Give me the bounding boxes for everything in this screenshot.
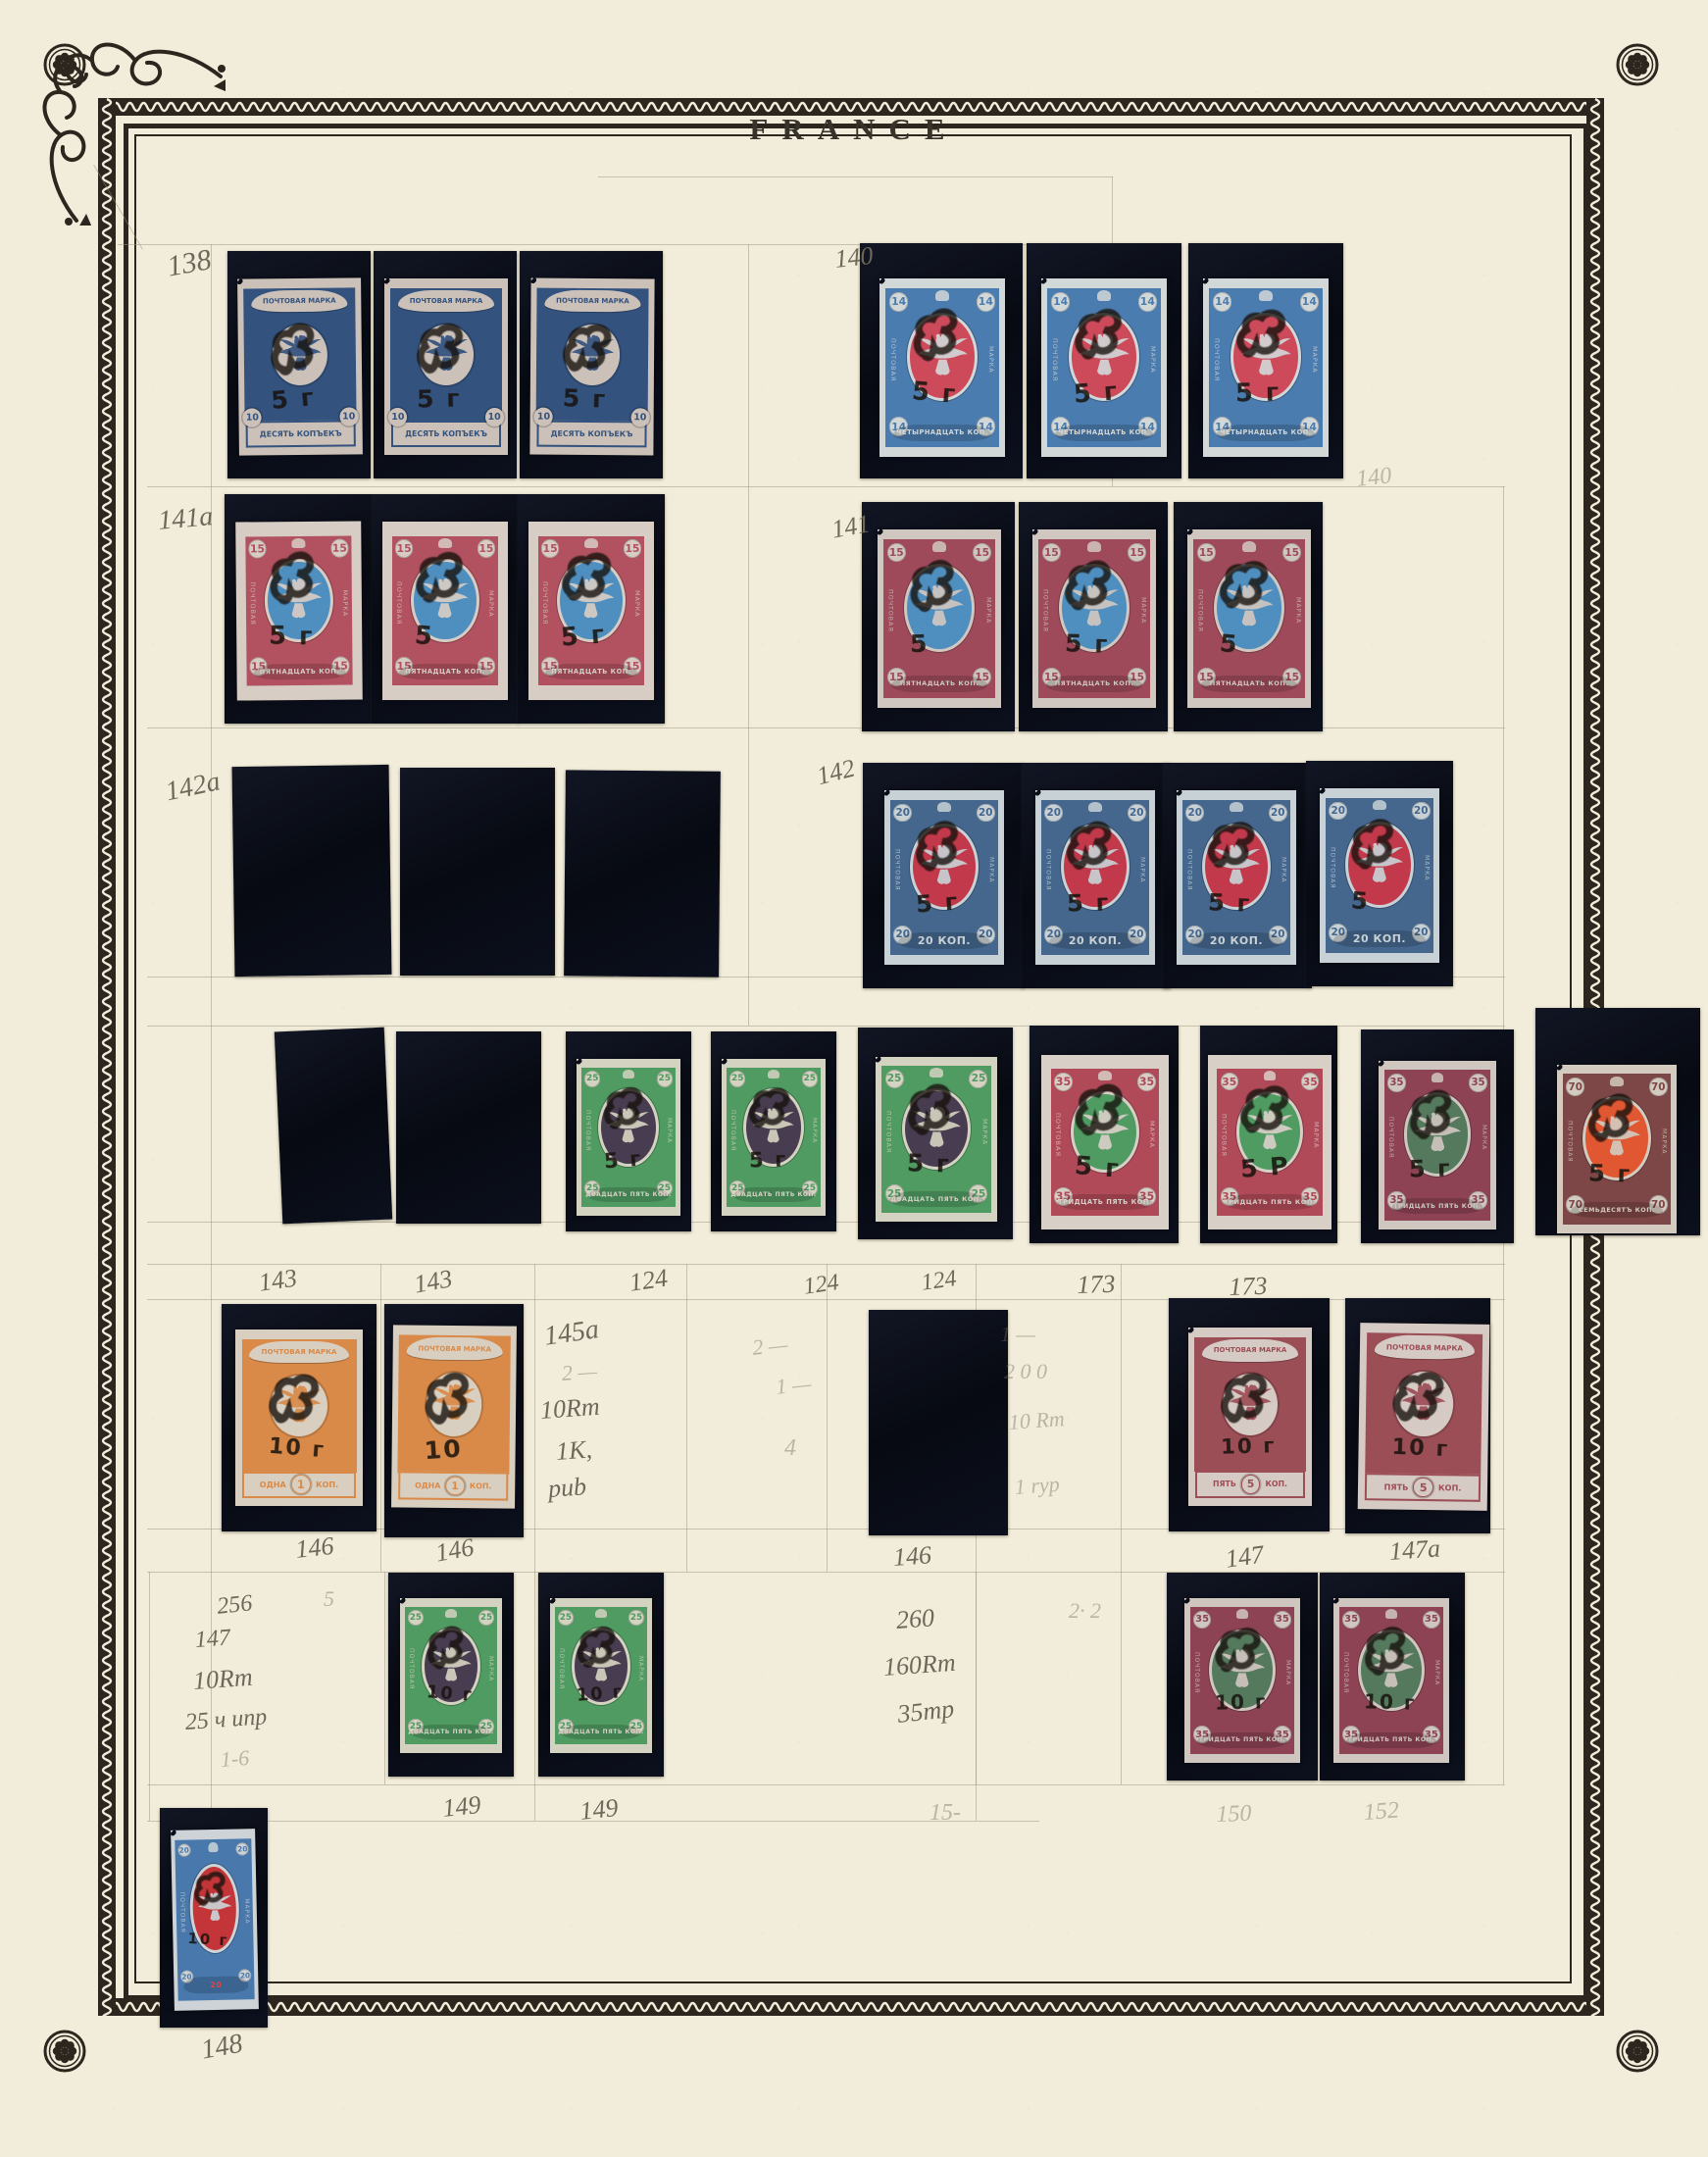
pencil-note: 173: [1077, 1270, 1116, 1300]
crown-icon: [1610, 1077, 1623, 1086]
crown-icon: [1432, 1073, 1444, 1082]
corner-value: 15: [624, 539, 641, 557]
stamp: ПОЧТОВАЯМАРКА15151515 ПЯТНАДЦАТЬ КОП. 5: [1187, 529, 1311, 708]
eagle-icon: [1348, 825, 1411, 905]
banner-side-text: МАРКА: [984, 575, 991, 648]
crown-icon: [1373, 800, 1385, 810]
pencil-guide-line: [1121, 1264, 1122, 1572]
corner-value: 20: [1269, 804, 1287, 823]
corner-value: 20: [1128, 804, 1146, 823]
value-plaque: СЕМЬДЕСЯТЪ КОП.: [1571, 1202, 1663, 1218]
crown-icon: [1098, 1071, 1111, 1080]
corner-value: 25: [628, 1610, 644, 1626]
crown-icon: [937, 802, 950, 812]
stamp-frame: ПОЧТОВАЯМАРКА25252525 ДВАДЦАТЬ ПЯТЬ КОП.: [727, 1068, 820, 1207]
pencil-note: 1-6: [220, 1745, 250, 1773]
corner-rosette-icon: [1616, 2030, 1659, 2073]
corner-value: 15: [477, 539, 495, 557]
value-word-right: КОП.: [470, 1481, 492, 1490]
banner-side-text: ПОЧТОВАЯ: [1566, 1107, 1573, 1176]
corner-value: 25: [802, 1071, 818, 1086]
eagle-icon: [601, 1091, 655, 1164]
value-plaque: ДЕСЯТЬ КОПЪЕКЪ: [391, 421, 501, 447]
eagle-icon: [1212, 1632, 1273, 1709]
center-oval: [1407, 1095, 1469, 1174]
eagle-icon: [1239, 1094, 1300, 1171]
value-plaque: ДЕСЯТЬ КОПЪЕКЪ: [245, 420, 355, 448]
center-oval: [565, 324, 621, 385]
page-title: FRANCE: [0, 112, 1708, 147]
stamp-frame: ПОЧТОВАЯМАРКА35353535 ТРИДЦАТЬ ПЯТЬ КОП.: [1384, 1070, 1490, 1220]
stamp: ПОЧТОВАЯМАРКА15151515 ПЯТНАДЦАТЬ КОП. 5 …: [528, 522, 654, 700]
center-oval: [1205, 827, 1268, 907]
stamp: ПОЧТОВАЯ МАРКАОДНА1КОП. 10: [391, 1325, 517, 1508]
corner-value: 70: [1566, 1078, 1584, 1096]
center-oval: [1064, 827, 1127, 907]
pencil-note: 1 —: [1000, 1322, 1035, 1347]
banner-ribbon: ПОЧТОВАЯ МАРКА: [1374, 1335, 1475, 1360]
value-plaque: ЧЕТЫРНАДЦАТЬ КОП.: [1217, 425, 1314, 441]
stamp: ПОЧТОВАЯ МАРКАДЕСЯТЬ КОПЪЕКЪ1010 5 г: [384, 278, 508, 455]
center-oval: [1074, 1094, 1136, 1171]
pencil-note: 140: [833, 241, 875, 275]
banner-side-text: МАРКА: [1149, 324, 1157, 397]
pencil-note: 1K,: [555, 1434, 593, 1466]
stamp: ПОЧТОВАЯМАРКА14141414 ЧЕТЫРНАДЦАТЬ КОП. …: [1041, 278, 1167, 457]
pencil-guide-line: [827, 1264, 828, 1572]
value-plaque: ДВАДЦАТЬ ПЯТЬ КОП.: [889, 1191, 983, 1207]
eagle-icon: [1074, 1094, 1136, 1171]
banner-side-text: ПОЧТОВАЯ: [1387, 1103, 1394, 1172]
pencil-note: 35mp: [896, 1694, 956, 1730]
value-number: 5: [1241, 1475, 1261, 1494]
banner-side-text: МАРКА: [341, 569, 350, 637]
eagle-icon: [1407, 1095, 1469, 1174]
stamp-frame: ПОЧТОВАЯМАРКА15151515 ПЯТНАДЦАТЬ КОП.: [1193, 539, 1304, 698]
eagle-icon: [905, 1091, 969, 1168]
banner-side-text: ПОЧТОВАЯ: [541, 569, 549, 637]
value-plaque: ТРИДЦАТЬ ПЯТЬ КОП.: [1225, 1194, 1315, 1210]
pencil-guide-line: [211, 244, 212, 1821]
eagle-icon: [746, 1091, 800, 1164]
value-plaque: ПЯТНАДЦАТЬ КОП.: [1046, 676, 1142, 692]
empty-stamp-mount: [396, 1031, 541, 1224]
empty-stamp-mount: [400, 768, 555, 976]
stamp: ПОЧТОВАЯ МАРКАПЯТЬ5КОП. 10 г: [1358, 1323, 1490, 1511]
banner-side-text: МАРКА: [487, 1637, 494, 1701]
corner-value: 15: [1197, 543, 1216, 562]
stamp: ПОЧТОВАЯМАРКА20202020 20 КОП. 5 г: [884, 790, 1004, 965]
banner-side-text: МАРКА: [1139, 834, 1146, 906]
empty-stamp-mount: [564, 770, 721, 977]
pencil-note: 10Rm: [539, 1392, 601, 1426]
crown-icon: [935, 290, 949, 301]
corner-value: 15: [248, 540, 267, 559]
stamp: ПОЧТОВАЯМАРКА70707070 СЕМЬДЕСЯТЪ КОП. 5 …: [1557, 1065, 1677, 1233]
value-word-left: ПЯТЬ: [1213, 1480, 1236, 1488]
pencil-guide-line: [976, 1572, 977, 1784]
center-oval: [425, 1630, 477, 1702]
value-plaque: ДВАДЦАТЬ ПЯТЬ КОП.: [588, 1187, 669, 1202]
corner-value: 20: [893, 804, 912, 823]
banner-side-text: МАРКА: [1311, 324, 1319, 397]
corner-value: 25: [657, 1071, 673, 1086]
banner-side-text: ПОЧТОВАЯ: [887, 575, 894, 648]
value-plaque: ПЯТНАДЦАТЬ КОП.: [399, 664, 491, 679]
side-value-circle: 10: [339, 408, 358, 426]
banner-side-text: ПОЧТОВАЯ: [1197, 575, 1204, 648]
value-plaque: ПЯТНАДЦАТЬ КОП.: [1201, 676, 1297, 692]
value-plaque: ЧЕТЫРНАДЦАТЬ КОП.: [1055, 425, 1152, 441]
eagle-icon: [910, 316, 976, 398]
pencil-note: 143: [257, 1264, 299, 1298]
value-plaque: ПЯТЬ5КОП.: [1195, 1471, 1305, 1498]
pencil-note: 147: [194, 1625, 231, 1653]
eagle-icon: [1072, 316, 1137, 398]
banner-side-text: МАРКА: [1148, 1101, 1156, 1169]
value-word-left: ПЯТЬ: [1383, 1482, 1408, 1492]
pencil-guide-line: [1121, 1572, 1122, 1784]
corner-value: 20: [177, 1844, 190, 1857]
stamp: ПОЧТОВАЯ МАРКАОДНА1КОП. 10 г: [235, 1329, 363, 1506]
center-oval: [1361, 1632, 1422, 1709]
crown-icon: [445, 1609, 456, 1618]
pencil-note: pub: [547, 1472, 587, 1504]
banner-side-text: ПОЧТОВАЯ: [1329, 832, 1335, 904]
corner-value: 20: [1412, 802, 1431, 821]
corner-value: 20: [977, 804, 995, 823]
corner-value: 25: [969, 1070, 987, 1088]
eagle-icon: [414, 562, 476, 640]
value-text: ДЕСЯТЬ КОПЪЕКЪ: [260, 428, 342, 438]
center-oval: [907, 567, 972, 649]
corner-value: 35: [1193, 1611, 1211, 1629]
stamp-frame: ПОЧТОВАЯМАРКА20202020 20: [176, 1838, 255, 2000]
eagle-icon: [271, 1376, 328, 1437]
pencil-guide-line: [686, 1264, 687, 1572]
crown-icon: [929, 1068, 942, 1078]
crown-icon: [1242, 541, 1256, 552]
center-oval: [905, 1091, 969, 1168]
banner-side-text: ПОЧТОВАЯ: [248, 570, 257, 638]
pencil-note: 2· 2: [1069, 1598, 1101, 1624]
banner-side-text: МАРКА: [1481, 1103, 1487, 1172]
pencil-note: 1 ryp: [1014, 1472, 1061, 1500]
banner-ribbon: ПОЧТОВАЯ МАРКА: [249, 1341, 348, 1364]
eagle-icon: [1062, 567, 1127, 649]
corner-value: 15: [1128, 543, 1146, 562]
value-plaque: ЧЕТЫРНАДЦАТЬ КОП.: [893, 425, 990, 441]
pencil-note: 146: [892, 1540, 932, 1573]
crown-icon: [1259, 290, 1273, 301]
eagle-icon: [1394, 1372, 1453, 1437]
pencil-note: 256: [216, 1590, 254, 1621]
banner-side-text: МАРКА: [637, 1637, 644, 1701]
center-oval: [191, 1866, 237, 1950]
banner-side-text: ПОЧТОВАЯ: [1193, 1639, 1200, 1707]
side-value-circle: 10: [485, 408, 504, 426]
banner-ribbon: ПОЧТОВАЯ МАРКА: [544, 289, 640, 312]
center-oval: [1217, 567, 1281, 649]
pencil-note: 147: [1224, 1540, 1266, 1575]
pencil-guide-line: [149, 1572, 150, 1821]
pencil-note: 148: [199, 2029, 245, 2067]
stamp-frame: ПОЧТОВАЯМАРКА15151515 ПЯТНАДЦАТЬ КОП.: [1038, 539, 1149, 698]
crown-icon: [1087, 541, 1101, 552]
eagle-icon: [425, 1630, 477, 1702]
banner-side-text: ПОЧТОВАЯ: [408, 1637, 415, 1701]
banner-side-text: ПОЧТОВАЯ: [893, 834, 900, 906]
pencil-guide-line: [380, 1264, 381, 1572]
center-oval: [268, 561, 330, 639]
banner-side-text: МАРКА: [242, 1874, 251, 1947]
pencil-note: 2 0 0: [1004, 1359, 1047, 1384]
value-plaque: 20 КОП.: [1049, 932, 1141, 949]
pencil-note: 150: [1216, 1801, 1252, 1829]
stamp-frame: ПОЧТОВАЯМАРКА20202020 20 КОП.: [1182, 800, 1290, 955]
pencil-note: 10Rm: [192, 1663, 254, 1696]
empty-stamp-mount: [275, 1028, 392, 1225]
center-oval: [1223, 1374, 1279, 1435]
stamp: ПОЧТОВАЯМАРКА25252525 ДВАДЦАТЬ ПЯТЬ КОП.…: [550, 1598, 652, 1753]
eagle-icon: [913, 827, 976, 907]
value-plaque: ДВАДЦАТЬ ПЯТЬ КОП.: [733, 1187, 814, 1202]
corner-value: 14: [889, 292, 909, 312]
stamp-frame: ПОЧТОВАЯМАРКА35353535 ТРИДЦАТЬ ПЯТЬ КОП.: [1339, 1607, 1443, 1754]
corner-value: 14: [1051, 292, 1071, 312]
pencil-note: 15-: [929, 1800, 961, 1827]
crown-icon: [1088, 802, 1101, 812]
center-oval: [601, 1091, 655, 1164]
eagle-icon: [560, 562, 622, 640]
banner-side-text: МАРКА: [811, 1098, 818, 1163]
eagle-icon: [191, 1866, 237, 1950]
center-oval: [1233, 316, 1299, 398]
banner-side-text: ПОЧТОВАЯ: [1213, 324, 1221, 397]
banner-ribbon: ПОЧТОВАЯ МАРКА: [251, 289, 348, 313]
corner-value: 14: [1138, 292, 1158, 312]
center-oval: [272, 324, 327, 385]
crown-icon: [584, 538, 597, 548]
stamp-frame: ПОЧТОВАЯМАРКА25252525 ДВАДЦАТЬ ПЯТЬ КОП.: [881, 1066, 991, 1213]
corner-value: 14: [1300, 292, 1320, 312]
corner-value: 15: [330, 539, 349, 558]
pencil-note: 260: [895, 1603, 935, 1635]
value-plaque: 20: [183, 1976, 249, 1994]
pencil-note: 160Rm: [882, 1648, 957, 1682]
pencil-guide-line: [147, 1784, 1505, 1785]
stamp: ПОЧТОВАЯМАРКА20202020 20 КОП. 5 г: [1035, 790, 1155, 965]
corner-value: 35: [1137, 1073, 1156, 1091]
value-word-right: КОП.: [1438, 1482, 1462, 1492]
corner-value: 25: [885, 1070, 904, 1088]
pencil-guide-line: [534, 1264, 535, 1821]
banner-side-text: ПОЧТОВАЯ: [1185, 834, 1192, 906]
value-number: 1: [445, 1477, 465, 1496]
banner-side-text: ПОЧТОВАЯ: [1051, 324, 1059, 397]
eagle-icon: [1233, 316, 1299, 398]
center-oval: [426, 1373, 481, 1436]
banner-side-text: МАРКА: [1433, 1639, 1440, 1707]
banner-side-text: ПОЧТОВАЯ: [729, 1098, 736, 1163]
corner-value: 15: [395, 539, 413, 557]
value-plaque: ПЯТНАДЦАТЬ КОП.: [254, 664, 346, 680]
banner-side-text: ПОЧТОВАЯ: [885, 1098, 892, 1166]
corner-value: 14: [977, 292, 996, 312]
banner-side-text: МАРКА: [487, 569, 495, 637]
pencil-note: 124: [920, 1266, 958, 1297]
center-oval: [1212, 1632, 1273, 1709]
banner-side-text: МАРКА: [1139, 575, 1146, 648]
corner-value: 35: [1387, 1074, 1405, 1091]
pencil-guide-line: [598, 176, 1113, 177]
stamp-frame: ПОЧТОВАЯМАРКА15151515 ПЯТНАДЦАТЬ КОП.: [245, 535, 353, 686]
pencil-note: 124: [802, 1270, 840, 1301]
stamp: ПОЧТОВАЯМАРКА35353535 ТРИДЦАТЬ ПЯТЬ КОП.…: [1208, 1055, 1331, 1229]
value-plaque: ПЯТНАДЦАТЬ КОП.: [545, 664, 637, 679]
stamp: ПОЧТОВАЯМАРКА35353535 ТРИДЦАТЬ ПЯТЬ КОП.…: [1333, 1598, 1449, 1763]
eagle-icon: [1064, 827, 1127, 907]
corner-value: 35: [1342, 1611, 1360, 1629]
stamp-frame: ПОЧТОВАЯМАРКА25252525 ДВАДЦАТЬ ПЯТЬ КОП.: [581, 1068, 675, 1207]
stamp: ПОЧТОВАЯМАРКА20202020 20 10 г: [171, 1829, 259, 2011]
banner-side-text: МАРКА: [633, 569, 641, 637]
corner-rosette-icon: [1616, 43, 1659, 86]
eagle-icon: [1585, 1099, 1648, 1178]
value-plaque: ДВАДЦАТЬ ПЯТЬ КОП.: [412, 1725, 491, 1739]
crown-icon: [1385, 1609, 1398, 1619]
center-oval: [1585, 1099, 1648, 1178]
banner-side-text: МАРКА: [1284, 1639, 1291, 1707]
crown-icon: [438, 538, 451, 548]
eagle-icon: [272, 324, 327, 385]
stamp: ПОЧТОВАЯМАРКА20202020 20 КОП. 5: [1320, 788, 1439, 963]
banner-ribbon: ПОЧТОВАЯ МАРКА: [1202, 1339, 1298, 1362]
stamp: ПОЧТОВАЯМАРКА15151515 ПЯТНАДЦАТЬ КОП. 5 …: [235, 521, 363, 700]
stamp-frame: ПОЧТОВАЯМАРКА20202020 20 КОП.: [1326, 798, 1433, 953]
crown-icon: [292, 538, 305, 548]
value-plaque: 20 КОП.: [1190, 932, 1282, 949]
corner-value: 20: [1329, 802, 1347, 821]
banner-side-text: ПОЧТОВАЯ: [1054, 1101, 1062, 1169]
stamp: ПОЧТОВАЯМАРКА25252525 ДВАДЦАТЬ ПЯТЬ КОП.…: [577, 1059, 680, 1216]
corner-value: 15: [973, 543, 991, 562]
eagle-icon: [1217, 567, 1281, 649]
stamp: ПОЧТОВАЯМАРКА14141414 ЧЕТЫРНАДЦАТЬ КОП. …: [879, 278, 1005, 457]
crown-icon: [1236, 1609, 1249, 1619]
corner-value: 20: [236, 1842, 249, 1855]
corner-rosette-icon: [43, 2030, 86, 2073]
center-oval: [1072, 316, 1137, 398]
banner-side-text: МАРКА: [1281, 834, 1287, 906]
value-word-right: КОП.: [1265, 1480, 1287, 1488]
value-plaque: ТРИДЦАТЬ ПЯТЬ КОП.: [1346, 1732, 1435, 1748]
stamp: ПОЧТОВАЯ МАРКАДЕСЯТЬ КОПЪЕКЪ1010 5 г: [529, 278, 654, 456]
stamp-frame: ПОЧТОВАЯМАРКА15151515 ПЯТНАДЦАТЬ КОП.: [883, 539, 994, 698]
value-plaque: ПЯТЬ5КОП.: [1365, 1473, 1481, 1502]
corner-value: 35: [1301, 1073, 1319, 1090]
banner-side-text: МАРКА: [1424, 832, 1431, 904]
banner-side-text: ПОЧТОВАЯ: [558, 1637, 565, 1701]
pencil-note: 10 Rm: [1008, 1406, 1066, 1435]
stamp: ПОЧТОВАЯМАРКА15151515 ПЯТНАДЦАТЬ КОП. 5: [382, 522, 508, 700]
corner-value: 35: [1054, 1073, 1073, 1091]
banner-side-text: ПОЧТОВАЯ: [889, 324, 897, 397]
banner-side-text: ПОЧТОВАЯ: [395, 569, 403, 637]
empty-stamp-mount: [869, 1310, 1008, 1535]
stamp: ПОЧТОВАЯМАРКА14141414 ЧЕТЫРНАДЦАТЬ КОП. …: [1203, 278, 1329, 457]
value-plaque: ТРИДЦАТЬ ПЯТЬ КОП.: [1058, 1194, 1151, 1210]
side-value-circle: 10: [630, 409, 649, 427]
crown-icon: [932, 541, 946, 552]
stamp-frame: ПОЧТОВАЯМАРКА35353535 ТРИДЦАТЬ ПЯТЬ КОП.: [1217, 1069, 1322, 1216]
stamp: ПОЧТОВАЯМАРКА25252525 ДВАДЦАТЬ ПЯТЬ КОП.…: [722, 1059, 826, 1216]
pencil-guide-line: [384, 1572, 385, 1784]
value-plaque: 20 КОП.: [1333, 930, 1426, 947]
value-plaque: ДВАДЦАТЬ ПЯТЬ КОП.: [562, 1725, 641, 1739]
pencil-note: 149: [578, 1793, 620, 1827]
banner-side-text: ПОЧТОВАЯ: [1342, 1639, 1349, 1707]
center-oval: [1394, 1372, 1453, 1437]
center-oval: [271, 1376, 328, 1437]
pencil-note: 1 —: [775, 1371, 813, 1400]
center-oval: [746, 1091, 800, 1164]
corner-value: 20: [1044, 804, 1063, 823]
corner-value: 35: [1274, 1611, 1291, 1629]
stamp-frame: ПОЧТОВАЯМАРКА35353535 ТРИДЦАТЬ ПЯТЬ КОП.: [1051, 1069, 1160, 1216]
center-oval: [560, 562, 622, 640]
value-plaque: ТРИДЦАТЬ ПЯТЬ КОП.: [1197, 1732, 1286, 1748]
stamp-frame: ПОЧТОВАЯМАРКА25252525 ДВАДЦАТЬ ПЯТЬ КОП.: [555, 1607, 647, 1745]
value-text: ДЕСЯТЬ КОПЪЕКЪ: [405, 429, 487, 438]
pencil-guide-line: [748, 244, 749, 1026]
pencil-note: 2 —: [751, 1331, 789, 1361]
eagle-icon: [565, 324, 621, 385]
value-plaque: ПЯТНАДЦАТЬ КОП.: [891, 676, 987, 692]
banner-side-text: МАРКА: [980, 1098, 987, 1166]
banner-side-text: ПОЧТОВАЯ: [1221, 1101, 1228, 1169]
center-oval: [1348, 825, 1411, 905]
pencil-note: 5: [324, 1586, 334, 1612]
banner-side-text: МАРКА: [1294, 575, 1301, 648]
stamp-frame: ПОЧТОВАЯМАРКА20202020 20 КОП.: [890, 800, 998, 955]
banner-ribbon: ПОЧТОВАЯ МАРКА: [398, 290, 494, 313]
crown-icon: [1230, 802, 1242, 812]
corner-value: 25: [558, 1610, 574, 1626]
corner-value: 35: [1423, 1611, 1440, 1629]
value-number: 1: [291, 1475, 311, 1494]
center-oval: [913, 827, 976, 907]
pencil-note: 146: [294, 1531, 335, 1565]
banner-side-text: МАРКА: [1312, 1101, 1319, 1169]
banner-side-text: МАРКА: [1661, 1107, 1668, 1176]
stamp-frame: ПОЧТОВАЯМАРКА70707070 СЕМЬДЕСЯТЪ КОП.: [1563, 1074, 1671, 1224]
pencil-note: 141a: [157, 501, 215, 537]
pencil-guide-line: [147, 486, 1505, 487]
corner-value: 25: [408, 1610, 424, 1626]
banner-ribbon: ПОЧТОВАЯ МАРКА: [406, 1337, 503, 1361]
center-oval: [1239, 1094, 1300, 1171]
stamp-frame: ПОЧТОВАЯМАРКА20202020 20 КОП.: [1041, 800, 1149, 955]
banner-side-text: МАРКА: [666, 1098, 673, 1163]
center-oval: [575, 1630, 628, 1702]
center-oval: [419, 325, 475, 386]
value-word-left: ОДНА: [415, 1481, 440, 1490]
pencil-note: 2 —: [561, 1358, 598, 1385]
stamp: ПОЧТОВАЯМАРКА25252525 ДВАДЦАТЬ ПЯТЬ КОП.…: [876, 1057, 997, 1222]
corner-value: 25: [584, 1071, 600, 1086]
value-number: 5: [1413, 1478, 1433, 1498]
